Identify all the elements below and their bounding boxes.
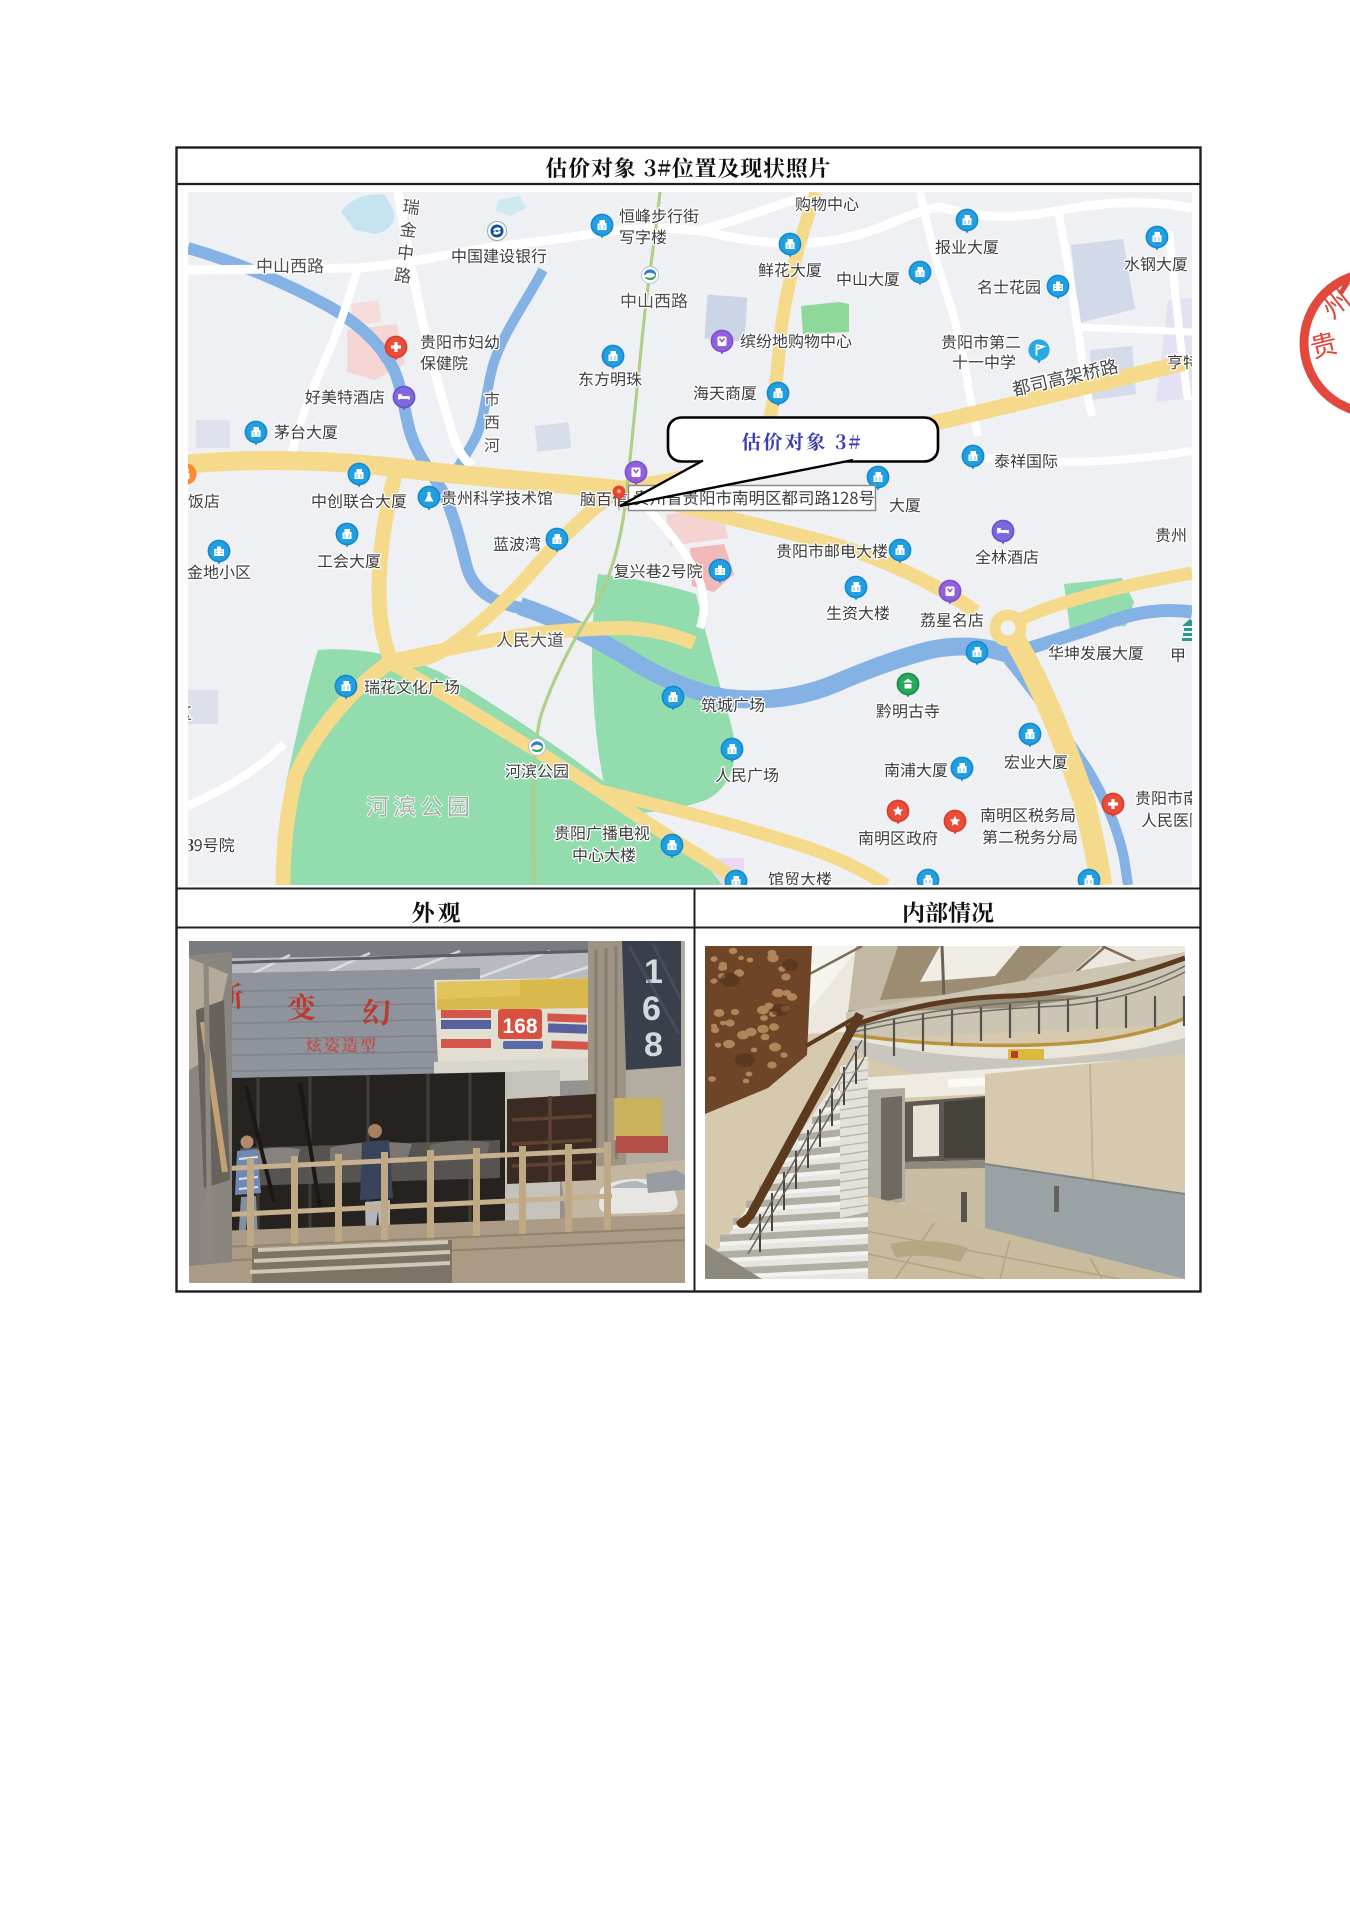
svg-text:168: 168 xyxy=(502,1015,537,1038)
svg-text:8: 8 xyxy=(644,1026,663,1064)
